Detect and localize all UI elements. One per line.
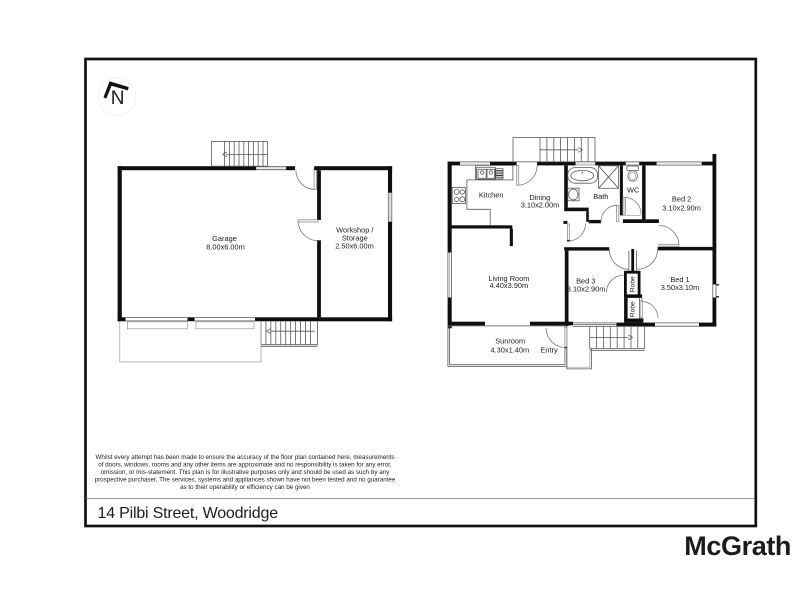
svg-text:Bath: Bath xyxy=(593,192,608,201)
svg-text:WC: WC xyxy=(627,185,640,194)
svg-text:Whilst every attempt has been: Whilst every attempt has been made to en… xyxy=(95,454,394,461)
svg-text:Entry: Entry xyxy=(540,345,558,354)
svg-text:N: N xyxy=(111,88,125,109)
svg-text:Robe: Robe xyxy=(629,301,636,317)
svg-text:McGrath: McGrath xyxy=(684,531,791,561)
svg-text:omission, or mis-statement. Th: omission, or mis-statement. This plan is… xyxy=(101,469,390,476)
svg-text:Living Room4.40x3.90m: Living Room4.40x3.90m xyxy=(488,274,529,290)
svg-text:Kitchen: Kitchen xyxy=(479,191,504,200)
svg-text:Sunroom4.30x1.40m: Sunroom4.30x1.40m xyxy=(490,336,529,354)
svg-text:prospective purchaser. The ser: prospective purchaser. The services, sys… xyxy=(95,476,396,483)
svg-text:of doors, windows, rooms and a: of doors, windows, rooms and any other i… xyxy=(98,461,392,468)
svg-text:Robe: Robe xyxy=(629,276,636,292)
svg-text:as to their operability or eff: as to their operability or efficiency ca… xyxy=(180,484,310,491)
svg-text:14 Pilbi Street, Woodridge: 14 Pilbi Street, Woodridge xyxy=(98,505,279,522)
